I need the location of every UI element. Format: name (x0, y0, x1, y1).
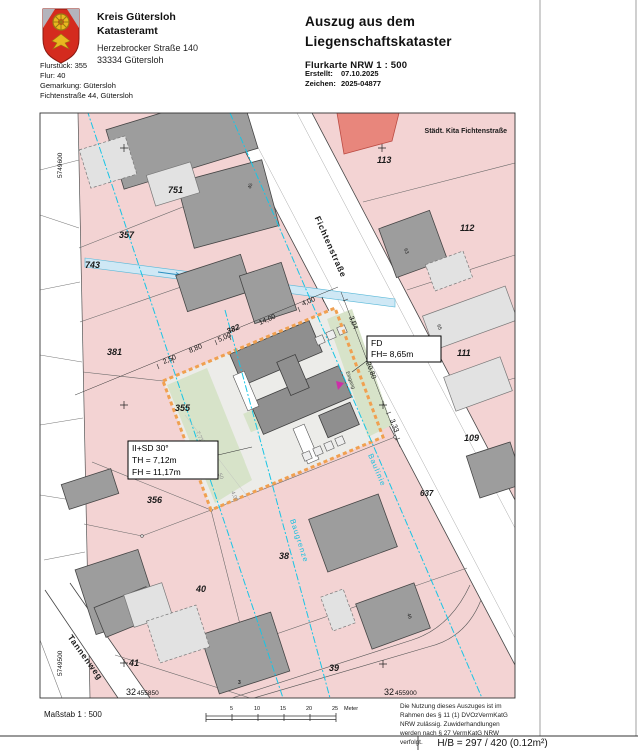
legal-line: Die Nutzung dieses Auszuges ist im (400, 702, 550, 711)
scalebar-tick-label: 5 (230, 706, 233, 712)
scalebar-tick-label: 25 (332, 706, 338, 712)
scalebar-unit-label: Meter (344, 706, 358, 712)
annotation-line: TH = 7,12m (132, 455, 177, 465)
parcel-label: 356 (147, 495, 163, 505)
page-border-lines (540, 0, 636, 736)
grid-northing-top: 5749600 (57, 152, 64, 178)
parcel-label: 113 (377, 155, 391, 165)
legal-line: NRW zulässig. Zuwiderhandlungen (400, 720, 550, 729)
scale-bar: 5 10 15 20 25 Meter (206, 706, 358, 722)
cadastral-extract-page: { "header": { "office_line1": "Kreis Güt… (0, 0, 638, 750)
annotation-box-height-limits: II+SD 30° TH = 7,12m FH = 11,17m (128, 441, 218, 479)
grid-easting-left-prefix: 32 (126, 687, 136, 697)
grid-easting-right-prefix: 32 (384, 687, 394, 697)
map-content: 2,50 8,80 5,00 14,00 4,00 3,04 20,80 3,3… (40, 89, 524, 698)
legal-line: werden nach § 27 VermKatG NRW (400, 729, 550, 738)
poi-label-kita: Städt. Kita Fichtenstraße (425, 128, 508, 135)
annotation-line: FD (371, 338, 382, 348)
parcel-label: 112 (460, 223, 474, 233)
format-note: H/B = 297 / 420 (0.12m²) (380, 738, 605, 749)
parcel-label: 39 (329, 663, 339, 673)
legal-line: Rahmen des § 11 (1) DVOzVermKatG (400, 711, 550, 720)
parcel-label: 38 (279, 551, 289, 561)
parcel-label: 41 (128, 658, 139, 668)
scalebar-tick-label: 20 (306, 706, 312, 712)
parcel-label: 743 (85, 260, 100, 270)
parcel-label: 109 (464, 433, 479, 443)
house-number: 3 (238, 680, 241, 686)
scalebar-tick-label: 15 (280, 706, 286, 712)
grid-northing-bottom: 5749500 (57, 650, 64, 676)
parcel-label: 111 (457, 348, 471, 358)
parcel-label: 355 (175, 403, 191, 413)
parcel-label: 637 (420, 489, 434, 498)
scale-text: Maßstab 1 : 500 (44, 710, 102, 719)
grid-easting-left-value: 455850 (137, 690, 159, 697)
parcel-label: 381 (107, 347, 122, 357)
grid-easting-right-value: 455900 (395, 690, 417, 697)
annotation-box-fd: FD FH= 8,65m (367, 336, 441, 362)
map-canvas: 2,50 8,80 5,00 14,00 4,00 3,04 20,80 3,3… (0, 0, 638, 750)
annotation-line: FH = 11,17m (132, 467, 181, 477)
parcel-label: 751 (168, 185, 183, 195)
annotation-line: FH= 8,65m (371, 349, 413, 359)
annotation-line: II+SD 30° (132, 443, 169, 453)
scalebar-tick-label: 10 (254, 706, 260, 712)
parcel-label: 40 (195, 584, 206, 594)
parcel-label: 357 (119, 230, 135, 240)
